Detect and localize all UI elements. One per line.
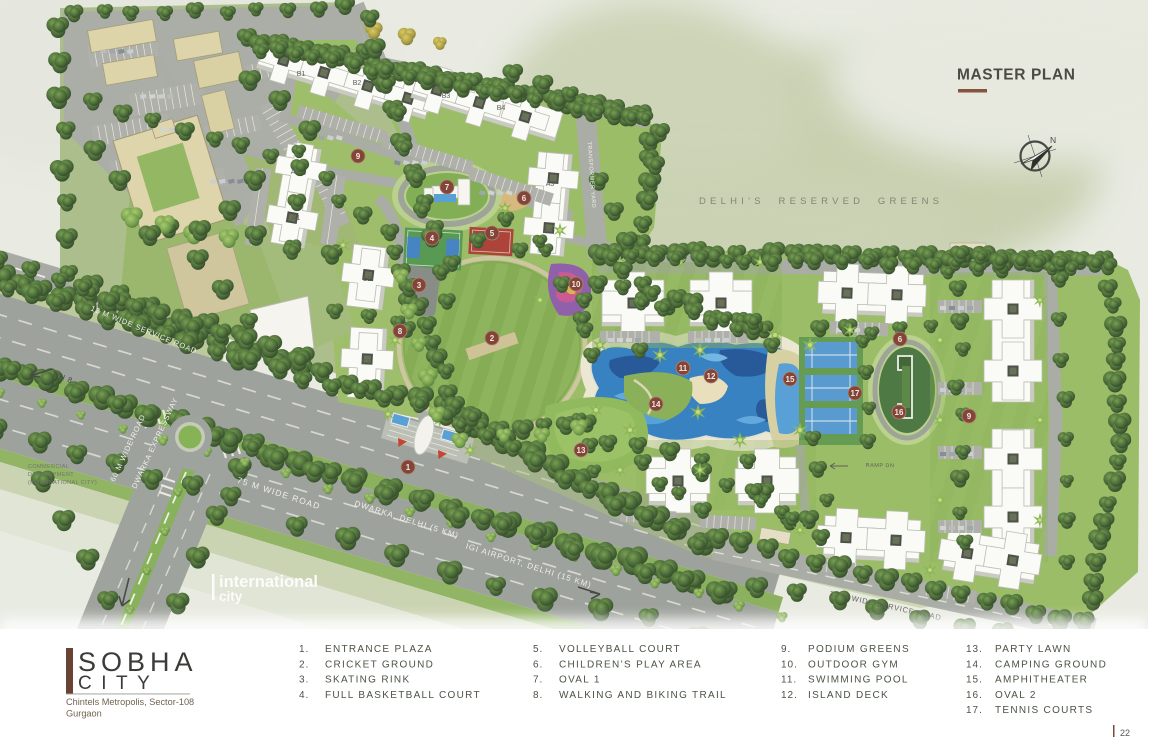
svg-text:22: 22 (1120, 728, 1130, 738)
svg-text:6.: 6. (533, 659, 543, 670)
svg-text:4.: 4. (299, 690, 309, 701)
svg-text:11.: 11. (781, 675, 797, 686)
svg-text:SKATING RINK: SKATING RINK (325, 675, 410, 686)
svg-text:8.: 8. (533, 690, 543, 701)
svg-text:1.: 1. (299, 644, 309, 655)
svg-text:3.: 3. (299, 675, 309, 686)
svg-text:10.: 10. (781, 659, 798, 670)
svg-text:PODIUM GREENS: PODIUM GREENS (808, 644, 910, 655)
svg-text:Gurgaon: Gurgaon (66, 709, 102, 719)
svg-text:Chintels Metropolis, Sector-10: Chintels Metropolis, Sector-108 (66, 697, 194, 707)
svg-text:13.: 13. (966, 644, 983, 655)
svg-text:WALKING AND BIKING TRAIL: WALKING AND BIKING TRAIL (559, 690, 727, 701)
svg-text:ISLAND DECK: ISLAND DECK (808, 690, 889, 701)
svg-text:AMPHITHEATER: AMPHITHEATER (995, 675, 1088, 686)
svg-text:FULL BASKETBALL COURT: FULL BASKETBALL COURT (325, 690, 481, 701)
svg-text:OVAL 2: OVAL 2 (995, 690, 1037, 701)
svg-text:9.: 9. (781, 644, 791, 655)
svg-text:2.: 2. (299, 659, 309, 670)
svg-text:MASTER PLAN: MASTER PLAN (957, 67, 1076, 84)
svg-text:14.: 14. (966, 659, 983, 670)
svg-text:7.: 7. (533, 675, 543, 686)
svg-text:OUTDOOR GYM: OUTDOOR GYM (808, 659, 899, 670)
svg-text:16.: 16. (966, 690, 983, 701)
svg-text:SWIMMING POOL: SWIMMING POOL (808, 675, 909, 686)
svg-text:OVAL 1: OVAL 1 (559, 675, 601, 686)
svg-text:TENNIS COURTS: TENNIS COURTS (995, 705, 1093, 716)
svg-text:VOLLEYBALL COURT: VOLLEYBALL COURT (559, 644, 681, 655)
svg-text:CAMPING GROUND: CAMPING GROUND (995, 659, 1107, 670)
svg-text:PARTY LAWN: PARTY LAWN (995, 644, 1072, 655)
svg-text:CITY: CITY (78, 673, 159, 694)
svg-text:ENTRANCE PLAZA: ENTRANCE PLAZA (325, 644, 433, 655)
svg-text:5.: 5. (533, 644, 543, 655)
svg-text:17.: 17. (966, 705, 983, 716)
svg-text:CRICKET GROUND: CRICKET GROUND (325, 659, 434, 670)
svg-text:15.: 15. (966, 675, 983, 686)
svg-text:12.: 12. (781, 690, 798, 701)
svg-text:CHILDREN’S PLAY AREA: CHILDREN’S PLAY AREA (559, 659, 702, 670)
